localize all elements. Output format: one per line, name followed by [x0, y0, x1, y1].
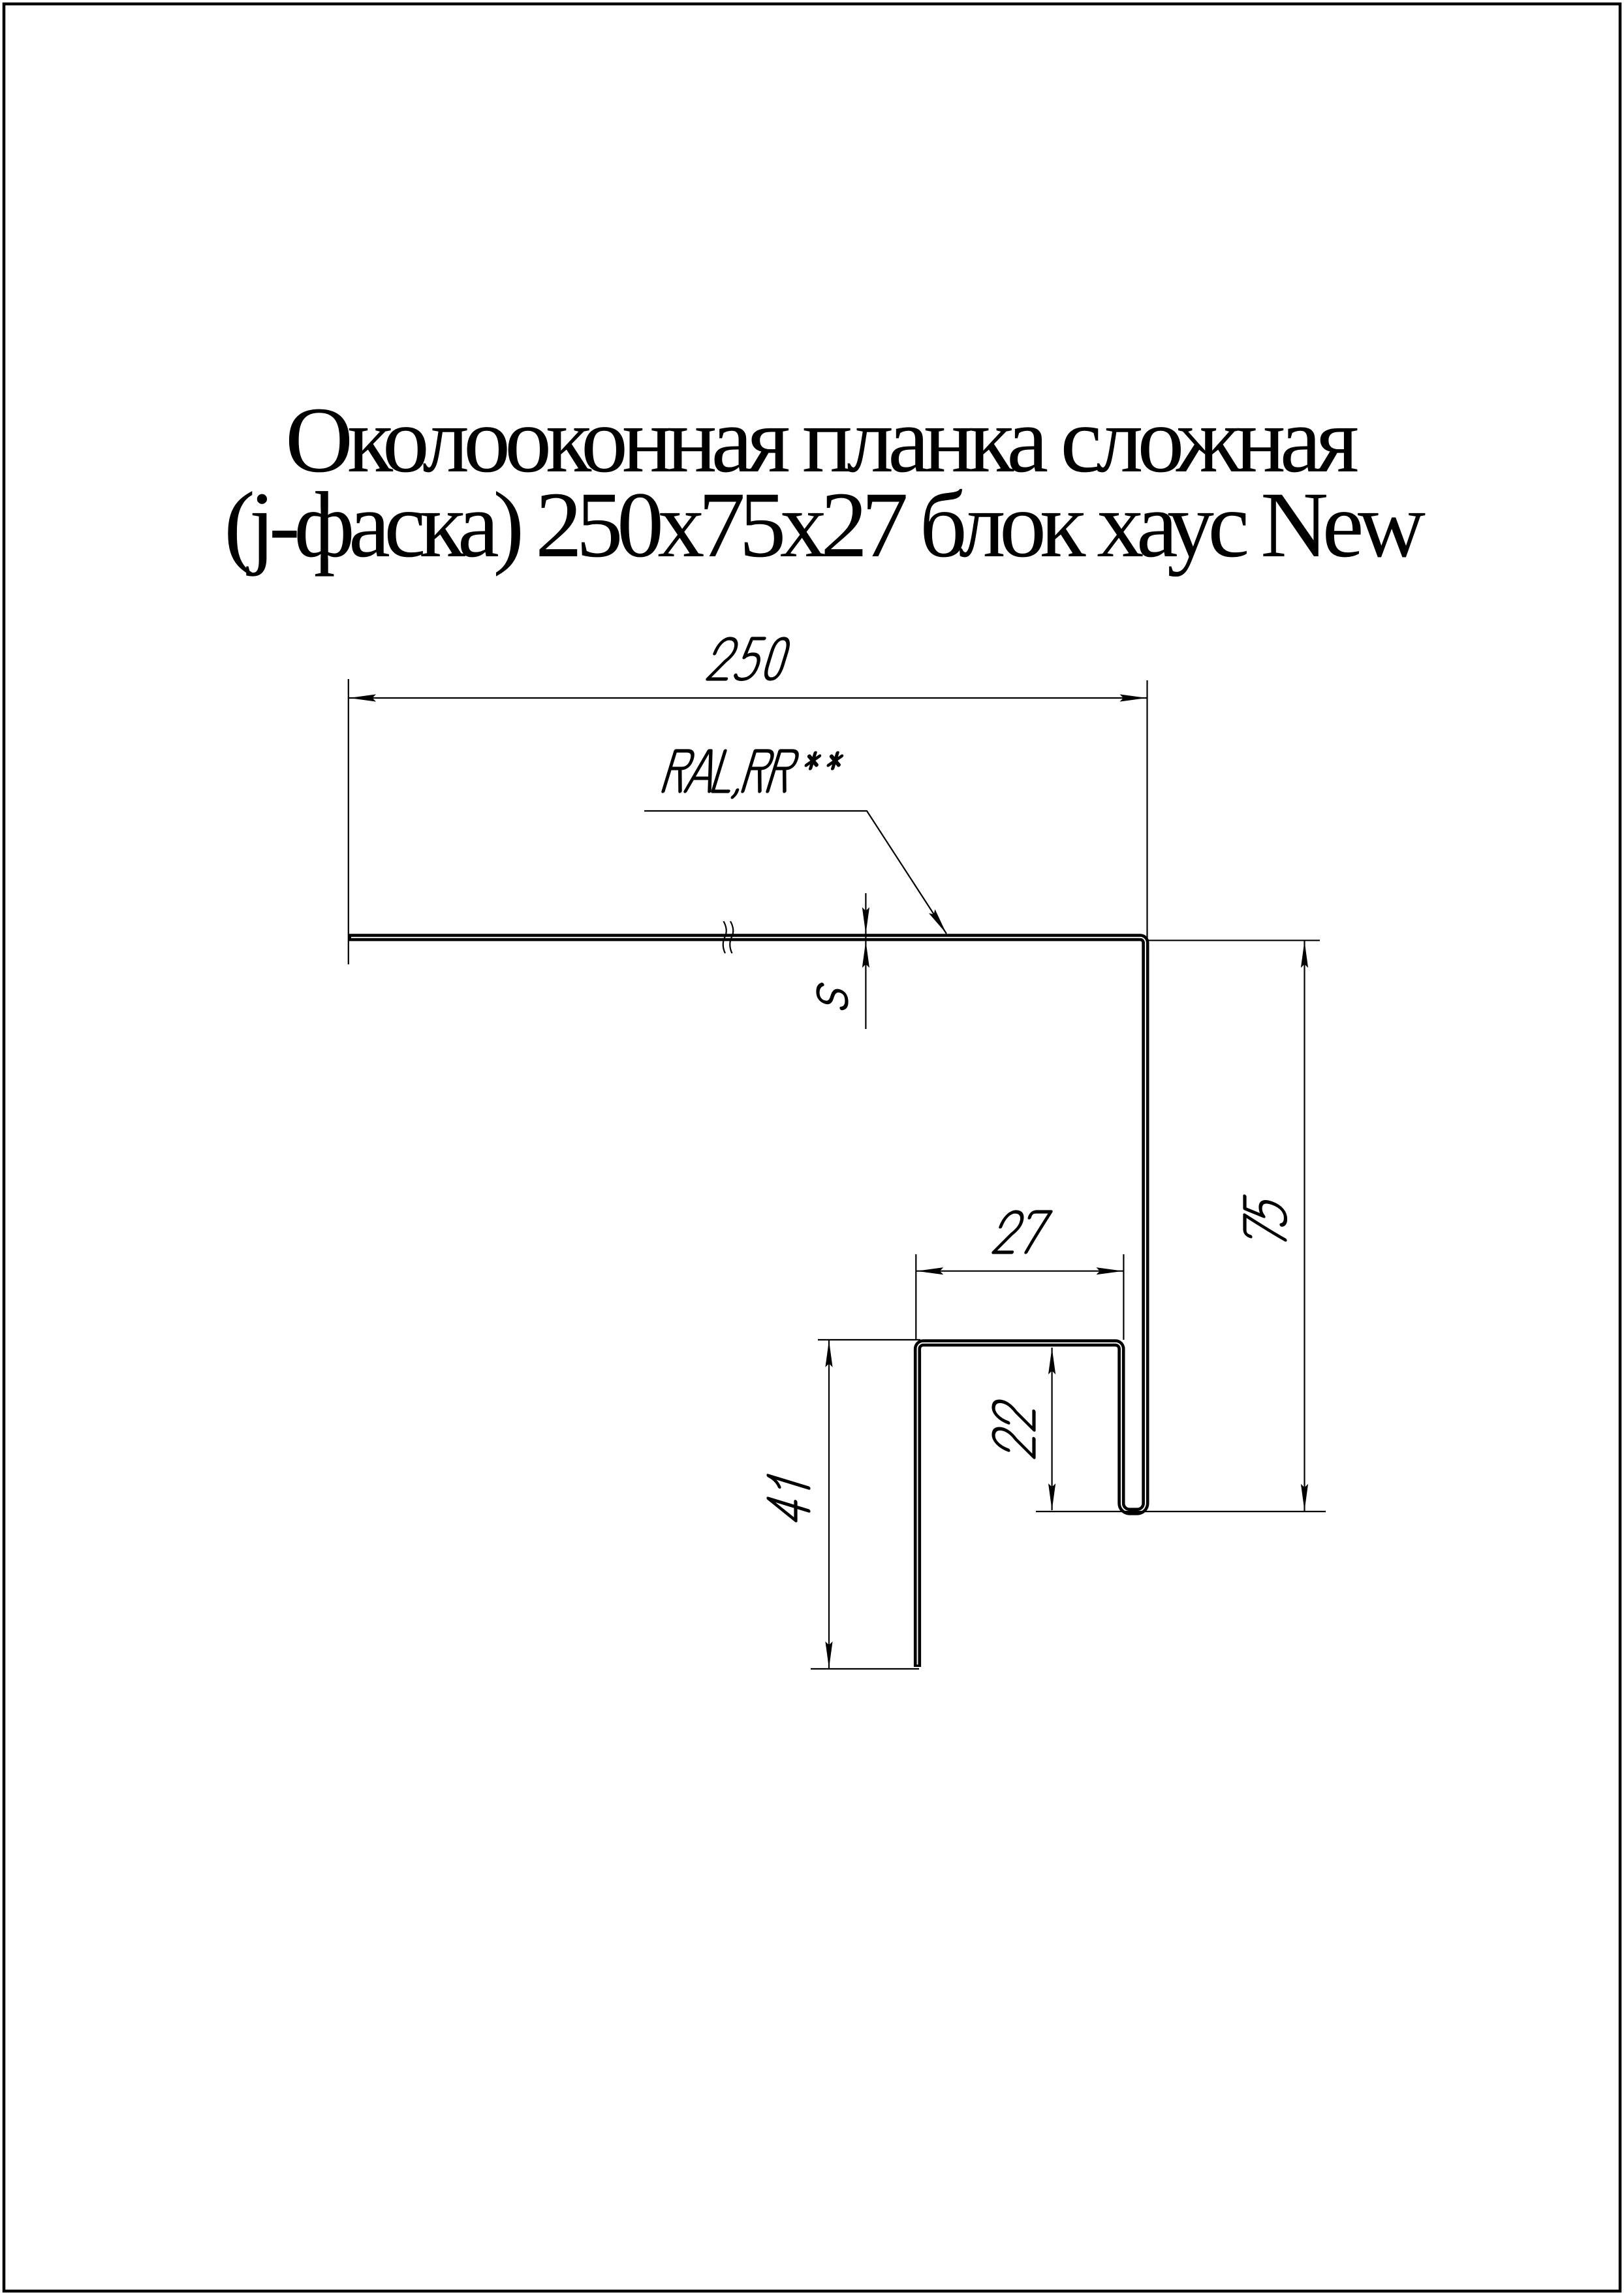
svg-text:(j-фаска) 250х75х27 блок хаус: (j-фаска) 250х75х27 блок хаус New — [224, 473, 1426, 577]
